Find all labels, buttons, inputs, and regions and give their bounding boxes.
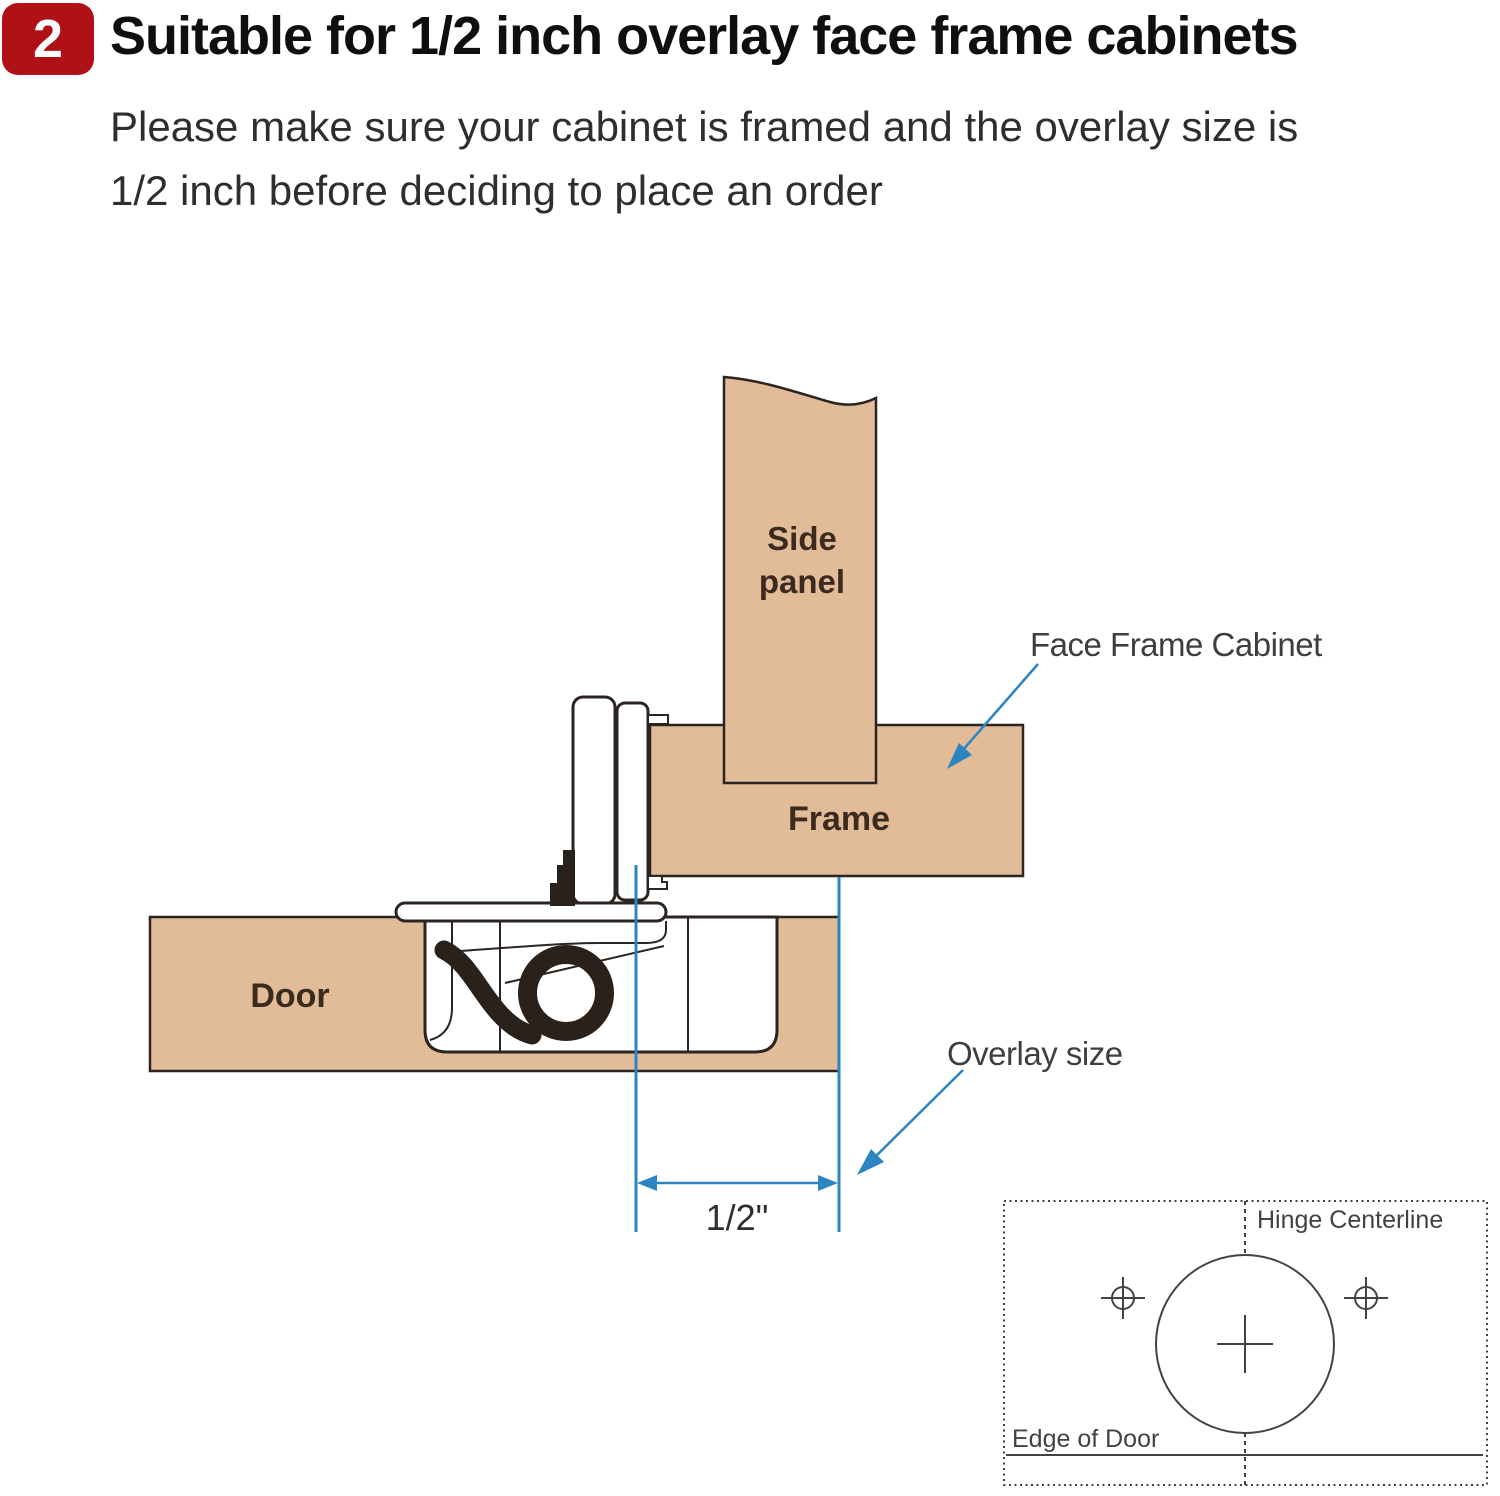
dimension-arrowhead-left xyxy=(637,1175,657,1191)
hinge-mount-plate-inner xyxy=(617,703,648,900)
screw-hole-left-crosshair xyxy=(1101,1277,1145,1319)
page-subtitle: Please make sure your cabinet is framed … xyxy=(110,95,1500,223)
side-panel-label-line1: Side xyxy=(767,520,837,557)
step-number: 2 xyxy=(33,8,63,70)
frame-label: Frame xyxy=(788,800,890,838)
hinge-baseplate xyxy=(396,903,666,921)
edge-of-door-label: Edge of Door xyxy=(1012,1425,1159,1453)
face-frame-cabinet-label: Face Frame Cabinet xyxy=(1030,626,1322,663)
overlay-arrow-line xyxy=(874,1070,963,1158)
hinge-clip xyxy=(550,850,575,906)
hinge-top-hook xyxy=(648,715,668,724)
hinge-centerline-label: Hinge Centerline xyxy=(1257,1206,1443,1234)
page-title: Suitable for 1/2 inch overlay face frame… xyxy=(110,0,1500,72)
subtitle-line-2: 1/2 inch before deciding to place an ord… xyxy=(110,167,883,214)
door-label: Door xyxy=(250,977,329,1015)
overlay-size-label: Overlay size xyxy=(947,1035,1123,1072)
dimension-arrowhead-right xyxy=(818,1175,838,1191)
hinge-bottom-hook xyxy=(648,876,667,889)
overlay-dimension-value: 1/2" xyxy=(706,1197,769,1238)
drilling-template-inset: Hinge Centerline Edge of Door xyxy=(1004,1201,1487,1485)
side-panel-label-line2: panel xyxy=(759,563,845,600)
subtitle-line-1: Please make sure your cabinet is framed … xyxy=(110,103,1298,150)
step-number-badge: 2 xyxy=(2,3,94,75)
screw-hole-right-crosshair xyxy=(1344,1277,1388,1319)
instruction-page: Hinge Centerline Edge of Door Side panel… xyxy=(0,0,1500,1496)
hinge-mount-plate-outer xyxy=(573,697,615,904)
hinge-overlay-diagram: Hinge Centerline Edge of Door Side panel… xyxy=(0,0,1500,1496)
